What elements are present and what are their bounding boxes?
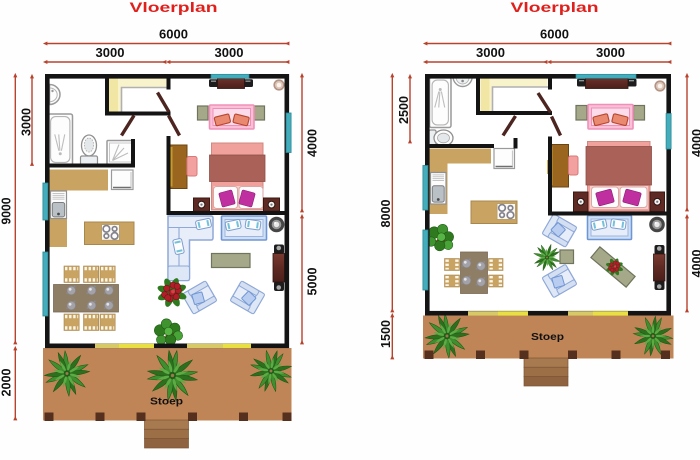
svg-text:Stoep: Stoep <box>531 331 564 343</box>
svg-text:Stoep: Stoep <box>150 396 183 408</box>
svg-text:4000: 4000 <box>689 250 700 278</box>
svg-text:6000: 6000 <box>159 27 188 42</box>
svg-text:3000: 3000 <box>476 45 505 60</box>
svg-text:2500: 2500 <box>396 96 411 124</box>
svg-text:5000: 5000 <box>305 268 320 296</box>
svg-text:6000: 6000 <box>540 27 569 42</box>
svg-text:1500: 1500 <box>378 320 393 348</box>
svg-text:8000: 8000 <box>378 200 393 228</box>
svg-text:Vloerplan: Vloerplan <box>130 0 218 16</box>
svg-text:3000: 3000 <box>96 45 125 60</box>
svg-text:2000: 2000 <box>0 369 14 397</box>
svg-text:9000: 9000 <box>0 198 14 225</box>
svg-text:3000: 3000 <box>596 45 625 60</box>
svg-text:4000: 4000 <box>305 129 320 157</box>
svg-text:4000: 4000 <box>689 129 700 157</box>
svg-text:Vloerplan: Vloerplan <box>511 0 599 16</box>
svg-text:3000: 3000 <box>215 45 244 60</box>
